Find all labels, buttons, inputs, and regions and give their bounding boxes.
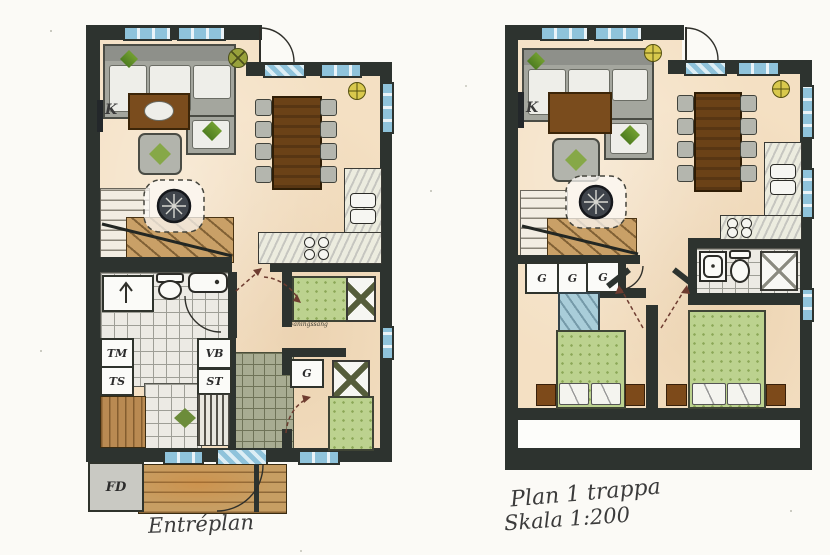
door-swing-arc [686, 28, 718, 60]
door-swing-arrow [661, 289, 685, 328]
right-plan: K G G G [505, 25, 812, 470]
arrowhead [681, 285, 690, 294]
stair-railing [522, 226, 638, 254]
hall-door-arc [618, 266, 643, 290]
washbasin [189, 273, 227, 292]
paper-speckles [50, 30, 52, 32]
washbasin-faucet [215, 280, 219, 284]
left-plan-linework [86, 25, 392, 515]
right-plan-linework [505, 25, 812, 470]
door-swing-arrow [286, 398, 308, 433]
arrowhead [293, 294, 301, 303]
left-plan: FD K [86, 25, 392, 515]
door-swing-arc [260, 28, 294, 62]
toilet-bowl [731, 260, 749, 282]
toilet-bowl [159, 281, 181, 299]
shower-arrow-icon [120, 283, 132, 303]
door-swing-arrow [264, 277, 299, 300]
door-swing-arrow [621, 289, 643, 328]
shower-drain [711, 264, 715, 268]
floor-plan-sheet: FD K [0, 0, 830, 555]
bathroom-door-arc [185, 296, 221, 332]
toilet-tank [730, 251, 750, 258]
left-plan-title: Entréplan [148, 510, 255, 538]
entrance-door-swing-arc [217, 465, 263, 511]
